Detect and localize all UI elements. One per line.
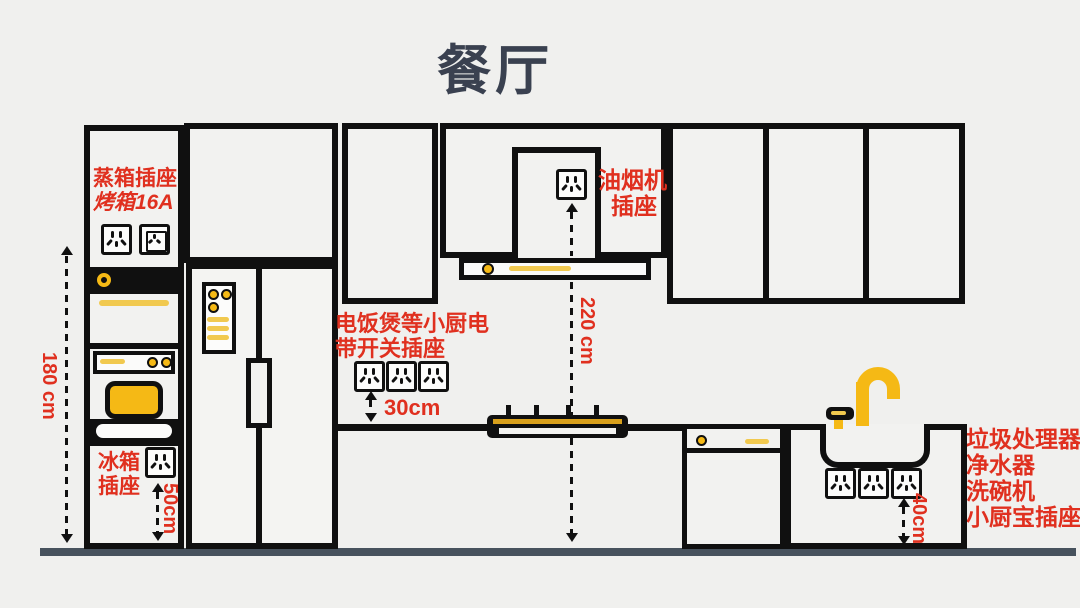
dishwasher-button-icon: [696, 435, 707, 446]
dimension-30cm: 30cm: [384, 396, 440, 421]
dimension-arrow-up: [365, 391, 377, 400]
dimension-line: [902, 507, 905, 537]
dimension-40cm: 40cm: [908, 493, 930, 544]
cabinet-door-divider: [863, 129, 869, 298]
dimension-line: [570, 212, 573, 256]
floor-line: [40, 548, 1076, 556]
cooktop-slot: [499, 428, 616, 434]
knob-icon: [97, 273, 111, 287]
dimension-arrow-down: [365, 413, 377, 422]
dishwasher-handle: [745, 439, 769, 444]
kitchen-outlet-diagram: 餐厅 蒸箱插座 烤箱16A 冰箱 插座 50cm 180 cm 电饭煲: [0, 0, 1080, 608]
fridge-display-bar: [207, 326, 229, 331]
fridge-outlet-label: 冰箱: [98, 451, 140, 475]
dimension-180cm: 180 cm: [38, 352, 60, 420]
drawer-handle: [99, 300, 169, 306]
dimension-arrow-up: [61, 246, 73, 255]
fridge-display-bar: [207, 335, 229, 340]
power-outlet-icon: [386, 361, 417, 392]
sink-outlet-label: 净水器: [966, 453, 1035, 479]
oven-16a-label: 烤箱16A: [93, 191, 174, 215]
oven-knob-icon: [147, 357, 158, 368]
sink-outlet-label: 小厨宝插座: [966, 505, 1080, 531]
small-appliance-label: 电饭煲等小厨电: [335, 312, 489, 337]
fridge-indicator: [208, 289, 219, 300]
fridge-outlet-label: 插座: [98, 475, 140, 499]
power-outlet-icon: [418, 361, 449, 392]
fridge-indicator: [208, 302, 219, 313]
fridge-handle: [246, 358, 272, 428]
small-appliance-label: 带开关插座: [335, 337, 445, 362]
dimension-50cm: 50cm: [159, 483, 181, 534]
sink-bowl: [820, 424, 930, 468]
hood-outlet-label: 插座: [611, 194, 657, 220]
cabinet-door-divider: [763, 129, 769, 298]
steam-oven-outlet-label: 蒸箱插座: [93, 167, 177, 191]
power-outlet-icon: [556, 169, 587, 200]
cooktop-top-stripe: [493, 419, 622, 424]
fridge-indicator: [221, 289, 232, 300]
dimension-line: [369, 400, 372, 414]
upper-cabinet-right: [667, 123, 965, 304]
oven-handle: [96, 424, 172, 438]
hood-outlet-label: 油烟机: [598, 168, 667, 194]
dimension-arrow-down: [566, 533, 578, 542]
hood-button-icon: [482, 263, 494, 275]
page-title: 餐厅: [370, 26, 620, 105]
upper-cabinet-above-fridge: [184, 123, 338, 263]
power-outlet-icon: [145, 447, 176, 478]
oven-window: [105, 381, 163, 419]
dimension-arrow-down: [61, 534, 73, 543]
outlet-16a-icon: [139, 224, 170, 255]
power-outlet-icon: [354, 361, 385, 392]
sink-outlet-label: 洗碗机: [966, 479, 1035, 505]
faucet-spout-icon: [856, 367, 900, 399]
dimension-arrow-up: [566, 203, 578, 212]
soap-dispenser-slot: [831, 411, 846, 415]
power-outlet-icon: [101, 224, 132, 255]
dimension-220cm: 220 cm: [576, 297, 598, 365]
dishwasher-panel-line: [687, 448, 780, 453]
shelf-divider: [90, 343, 178, 349]
hood-light-bar: [509, 266, 571, 271]
power-outlet-icon: [825, 468, 856, 499]
sink-outlet-label: 垃圾处理器: [966, 427, 1080, 453]
hood-duct: [512, 147, 601, 264]
oven-knob-icon: [161, 357, 172, 368]
power-outlet-icon: [858, 468, 889, 499]
oven-display: [100, 359, 125, 364]
dimension-line: [65, 256, 68, 536]
soap-dispenser-stem: [834, 419, 843, 429]
upper-cabinet-mid: [342, 123, 438, 304]
fridge-display-bar: [207, 317, 229, 322]
